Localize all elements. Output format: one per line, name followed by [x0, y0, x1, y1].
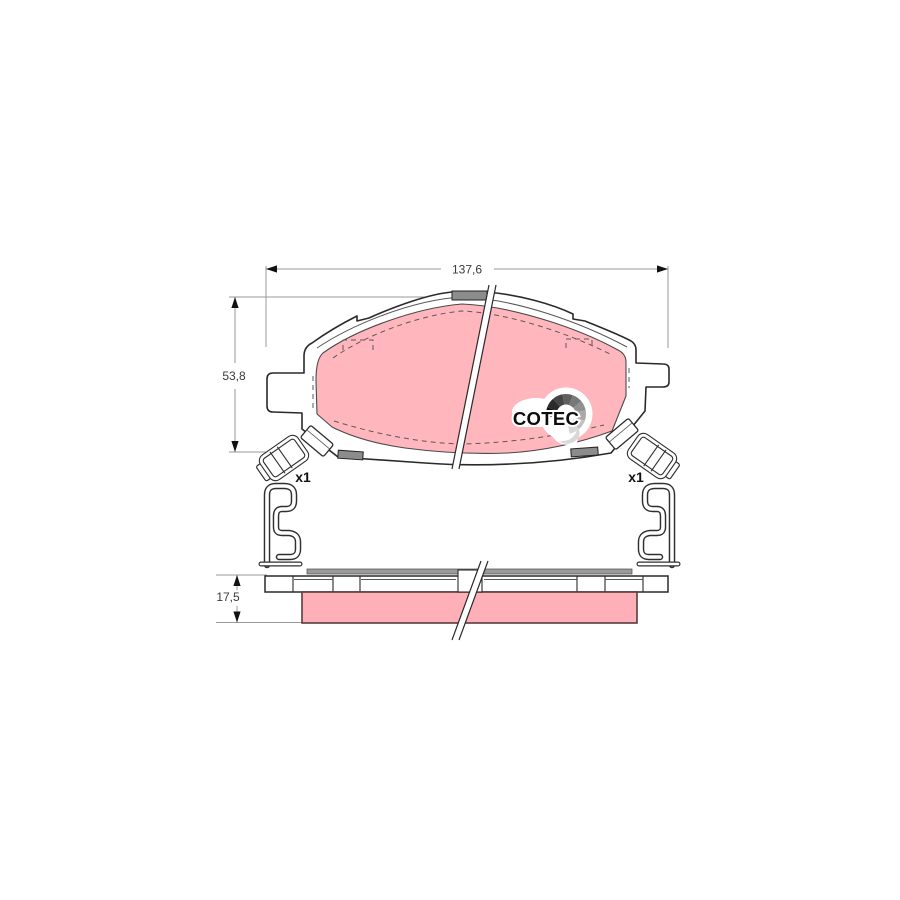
- arrowhead: [233, 575, 240, 586]
- brake-pad-edge-view: [265, 561, 668, 640]
- right-clip-quantity-label: x1: [628, 469, 644, 485]
- arrowhead: [233, 612, 240, 623]
- arrowhead: [231, 297, 238, 308]
- thickness-dimension-label: 17,5: [216, 590, 240, 604]
- cotec-logo-text: COTEC: [513, 408, 579, 429]
- bottom-tab-left: [338, 450, 363, 460]
- brake-pad-face-view: [267, 285, 669, 469]
- left-clip-quantity-label: x1: [295, 469, 311, 485]
- arrowhead: [657, 265, 668, 272]
- brake-pad-technical-drawing: 137,6 53,8 17,5: [0, 0, 900, 900]
- height-dimension-label: 53,8: [222, 369, 246, 383]
- arrowhead: [231, 441, 238, 452]
- arrowhead: [266, 265, 277, 272]
- bottom-tab-right: [571, 447, 598, 457]
- wear-indicator-tab: [452, 291, 487, 300]
- width-dimension-label: 137,6: [452, 263, 482, 277]
- technical-drawing-page: 137,6 53,8 17,5: [0, 0, 900, 900]
- clip-profile-left: [261, 486, 300, 565]
- clip-profile-right: [639, 486, 678, 565]
